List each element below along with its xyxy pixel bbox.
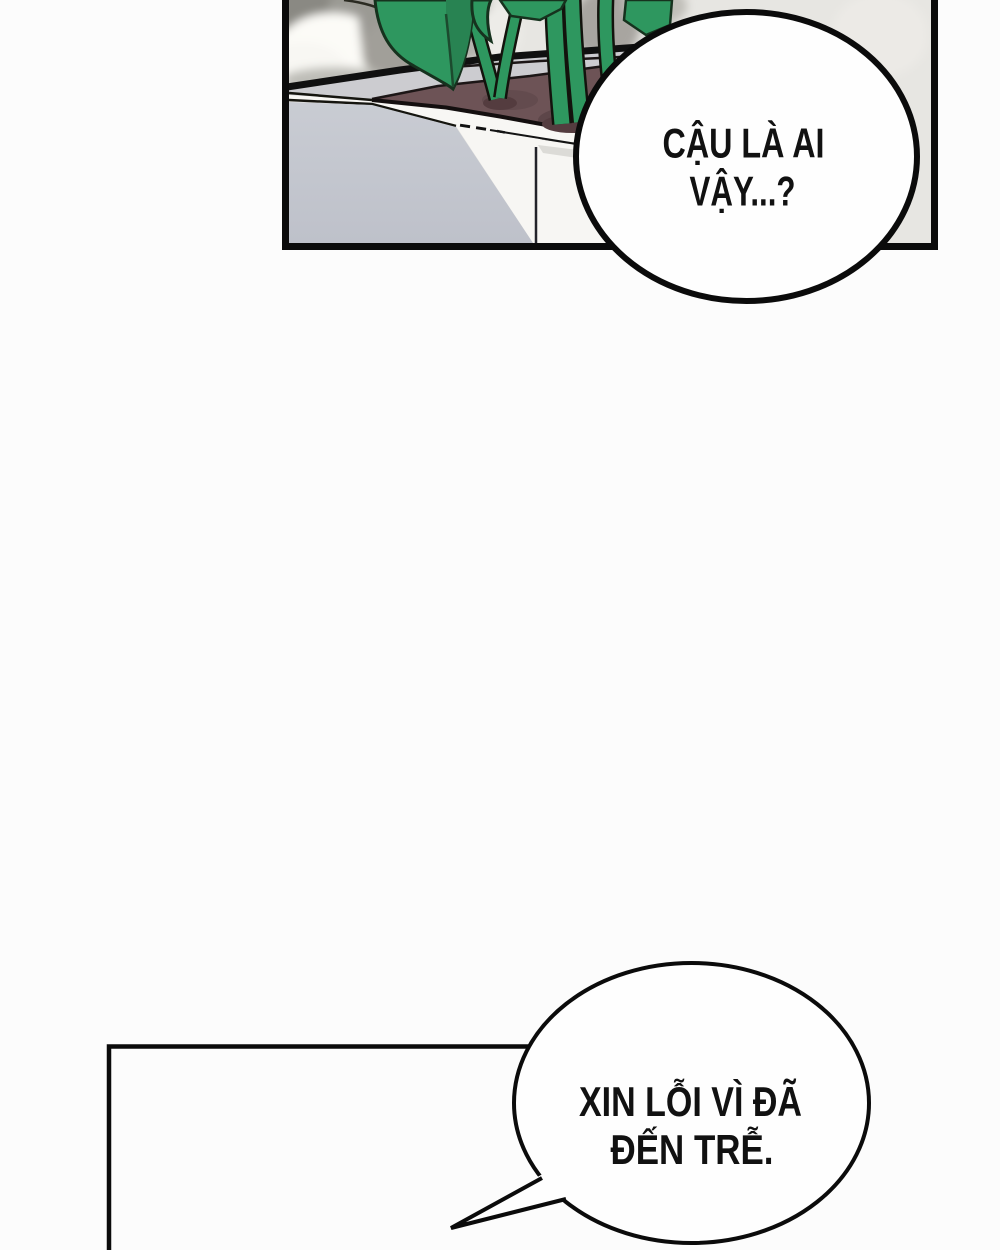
svg-text:ĐẾN TRỄ.: ĐẾN TRỄ. xyxy=(611,1126,774,1173)
svg-text:CẬU LÀ AI: CẬU LÀ AI xyxy=(663,120,825,167)
svg-text:XIN LỖI VÌ ĐÃ: XIN LỖI VÌ ĐÃ xyxy=(579,1078,802,1125)
svg-text:VẬY...?: VẬY...? xyxy=(690,168,796,215)
